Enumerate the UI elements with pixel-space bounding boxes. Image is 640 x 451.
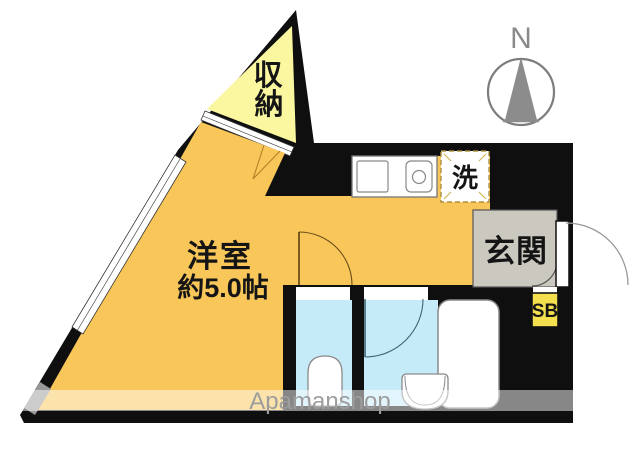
entrance-label: 玄関	[484, 234, 548, 269]
storage-label-char-1: 収	[253, 59, 283, 92]
watermark-text: Apamanshop	[249, 388, 390, 415]
shoebox-gap	[533, 287, 557, 293]
kitchen-sink	[357, 161, 388, 192]
toilet-doorway-gap	[296, 287, 350, 301]
storage-label-char-2: 納	[254, 87, 283, 121]
bath-doorway-gap	[364, 287, 428, 301]
compass-n-label: N	[510, 22, 532, 55]
floor-plan-page: 洗 玄関 SB 収 納 洋室 約5.0帖 Apamanshop N	[0, 0, 640, 451]
front-door-swing-arc	[566, 223, 628, 285]
floor-plan-svg: 洗 玄関 SB 収 納 洋室 約5.0帖 Apamanshop N	[0, 0, 640, 451]
main-room-size: 約5.0帖	[177, 272, 269, 303]
laundry-label: 洗	[452, 163, 478, 193]
front-door-leaf	[556, 221, 569, 287]
main-room-name: 洋室	[187, 239, 253, 274]
shoebox-label: SB	[532, 301, 558, 322]
stove-burner-icon	[413, 171, 426, 184]
